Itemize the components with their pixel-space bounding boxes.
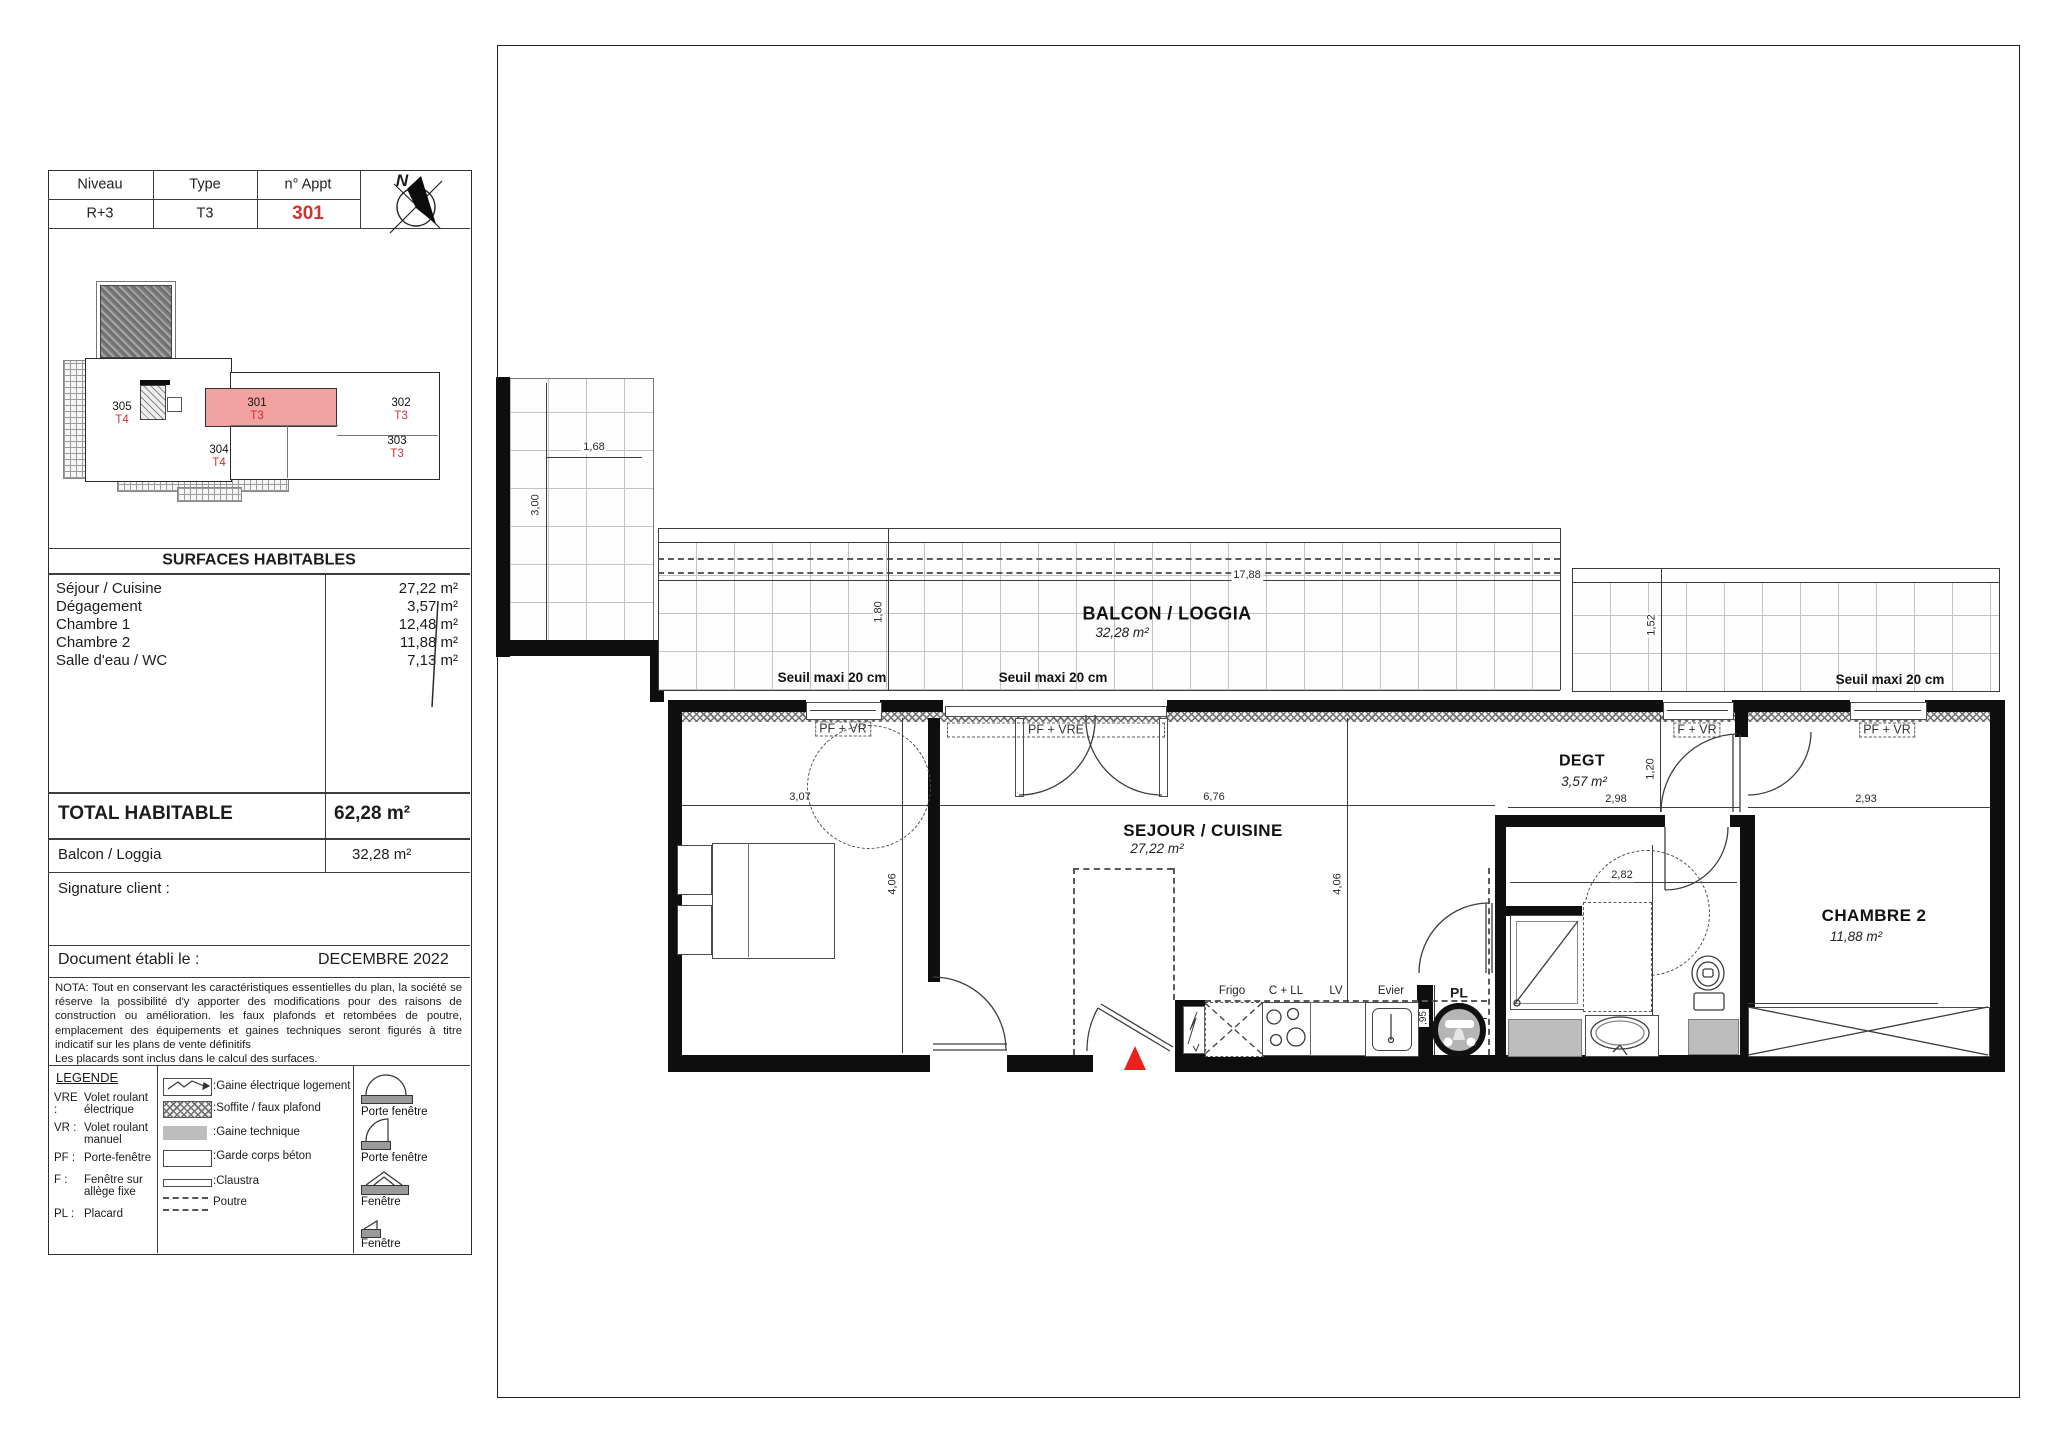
window-label-sejour: PF + VRE bbox=[947, 722, 1165, 737]
fenetre-icon bbox=[361, 1185, 409, 1195]
poutre-line bbox=[658, 572, 1560, 574]
wall-sejour-sde bbox=[1495, 815, 1506, 1055]
garde-corps-icon bbox=[163, 1150, 212, 1167]
dim-balcony2-depth: 1,52 bbox=[1647, 612, 1658, 637]
abbr-label: Volet roulant manuel bbox=[84, 1122, 152, 1146]
porte-fenetre-double-icon bbox=[361, 1095, 413, 1104]
window-label-degt: F + VR bbox=[1673, 722, 1720, 737]
dim-pl-width: ,90 bbox=[1449, 1003, 1467, 1014]
surface-row-value: 3,57 m² bbox=[330, 598, 458, 616]
symbol-label: Poutre bbox=[213, 1196, 350, 1208]
abbr-label: Placard bbox=[84, 1208, 152, 1220]
window-chambre1 bbox=[806, 702, 882, 720]
surfaces-values: 27,22 m² 3,57 m² 12,48 m² 11,88 m² 7,13 … bbox=[330, 580, 458, 670]
niveau-value: R+3 bbox=[86, 206, 113, 221]
lv-label: LV bbox=[1329, 985, 1342, 997]
accessibility-circle bbox=[807, 725, 931, 849]
unit-305: 305 bbox=[112, 401, 131, 413]
niveau-label: Niveau bbox=[77, 177, 122, 192]
opening-label: Porte fenêtre bbox=[361, 1152, 427, 1164]
symbol-label: :Gaine électrique logement bbox=[213, 1080, 350, 1092]
surface-row-value: 7,13 m² bbox=[330, 652, 458, 670]
abbr-code: PF : bbox=[54, 1152, 84, 1164]
entrance-triangle bbox=[1124, 1046, 1146, 1070]
dim-terrace-width: 1,68 bbox=[581, 442, 606, 454]
dim-degt-height: 1,20 bbox=[1646, 756, 1657, 781]
surface-row-label: Séjour / Cuisine bbox=[56, 580, 318, 598]
balcony-name: BALCON / LOGGIA bbox=[1083, 605, 1252, 624]
unit-304: 304 bbox=[209, 444, 228, 456]
dim-degt-width: 2,98 bbox=[1603, 794, 1628, 806]
legend-abbr: VRE :Volet roulant électrique VR :Volet … bbox=[54, 1092, 154, 1220]
degt-name: DEGT bbox=[1559, 754, 1605, 771]
balcony-row-value: 32,28 m² bbox=[352, 846, 411, 863]
unit-303-type: T3 bbox=[390, 448, 403, 460]
gaine-technique bbox=[1508, 1019, 1582, 1057]
seuil-label-3: Seuil maxi 20 cm bbox=[1836, 673, 1945, 687]
cooktop-box bbox=[1262, 1002, 1312, 1056]
washbasin-counter bbox=[1585, 1015, 1659, 1057]
dim-balcony-depth: 1,80 bbox=[874, 599, 885, 624]
soffite-icon bbox=[163, 1101, 212, 1118]
claustra-icon bbox=[163, 1179, 212, 1187]
nightstand bbox=[677, 905, 712, 955]
abbr-label: Porte-fenêtre bbox=[84, 1152, 152, 1164]
opening-label: Porte fenêtre bbox=[361, 1106, 427, 1118]
bed bbox=[712, 843, 835, 959]
total-value: 62,28 m² bbox=[334, 803, 410, 825]
type-label: Type bbox=[189, 177, 220, 192]
frigo-box bbox=[1205, 1002, 1264, 1057]
balcony-area: 32,28 m² bbox=[1095, 626, 1148, 640]
seuil-label-1: Seuil maxi 20 cm bbox=[778, 671, 887, 685]
surface-row-label: Salle d'eau / WC bbox=[56, 652, 318, 670]
surface-row-value: 27,22 m² bbox=[330, 580, 458, 598]
opening-label: Fenêtre bbox=[361, 1238, 401, 1250]
seuil-label-2: Seuil maxi 20 cm bbox=[999, 671, 1108, 685]
document-date-label: Document établi le : bbox=[58, 951, 199, 969]
compass-n-label: N bbox=[396, 172, 408, 190]
gaine-technique-icon bbox=[163, 1126, 207, 1140]
window-degt bbox=[1663, 702, 1734, 720]
surface-row-value: 11,88 m² bbox=[330, 634, 458, 652]
dim-balcony-width: 17,88 bbox=[1231, 570, 1263, 582]
unit-305-type: T4 bbox=[115, 414, 128, 426]
fenetre-fixe-icon bbox=[361, 1229, 381, 1238]
symbol-label: :Gaine technique bbox=[213, 1126, 350, 1138]
abbr-code: PL : bbox=[54, 1208, 84, 1220]
surfaces-title: SURFACES HABITABLES bbox=[162, 553, 356, 570]
opening-label: Fenêtre bbox=[361, 1196, 401, 1208]
unit-301-highlight bbox=[205, 388, 337, 427]
total-label: TOTAL HABITABLE bbox=[58, 803, 233, 825]
degt-area: 3,57 m² bbox=[1561, 775, 1607, 789]
poutre-icon bbox=[163, 1197, 208, 1211]
chambre2-name: CHAMBRE 2 bbox=[1822, 907, 1927, 925]
dim-terrace-height: 3,00 bbox=[531, 492, 542, 517]
symbol-label: :Claustra bbox=[213, 1175, 350, 1187]
nightstand bbox=[677, 845, 712, 895]
wardrobe bbox=[1748, 1007, 1990, 1057]
dim-chambre1-height: 4,06 bbox=[888, 871, 899, 896]
type-value: T3 bbox=[197, 206, 214, 221]
legend-title: LEGENDE bbox=[56, 1070, 118, 1085]
signature-label: Signature client : bbox=[58, 880, 170, 897]
balcony-row-label: Balcon / Loggia bbox=[58, 846, 161, 863]
frigo-label: Frigo bbox=[1219, 985, 1245, 997]
counter-box bbox=[1310, 1002, 1369, 1056]
stairwell bbox=[140, 385, 166, 420]
window-label-chambre2: PF + VR bbox=[1859, 722, 1915, 737]
roof-hatch bbox=[100, 285, 172, 358]
symbol-label: :Soffite / faux plafond bbox=[213, 1102, 350, 1114]
shower-tray-inner bbox=[1516, 921, 1578, 1004]
pl-label: PL bbox=[1450, 986, 1468, 1001]
surface-row-label: Chambre 2 bbox=[56, 634, 318, 652]
sejour-name: SEJOUR / CUISINE bbox=[1123, 822, 1282, 840]
abbr-code: VRE : bbox=[54, 1092, 84, 1116]
abbr-label: Volet roulant électrique bbox=[84, 1092, 152, 1116]
evier-basin bbox=[1372, 1008, 1412, 1051]
dim-sejour-width: 6,76 bbox=[1201, 792, 1226, 804]
floorplan-sheet: Niveau Type n° Appt R+3 T3 301 N 305 T4 … bbox=[0, 0, 2048, 1447]
appt-number: 301 bbox=[292, 204, 324, 224]
gaine-electrique-icon bbox=[163, 1078, 212, 1096]
shower-zone bbox=[1583, 902, 1652, 1012]
surface-row-value: 12,48 m² bbox=[330, 616, 458, 634]
legend-symbol-labels: :Gaine électrique logement :Soffite / fa… bbox=[213, 1080, 350, 1208]
unit-302-type: T3 bbox=[394, 410, 407, 422]
abbr-code: F : bbox=[54, 1174, 84, 1198]
dim-chambre2-width: 2,93 bbox=[1853, 794, 1878, 806]
surfaces-rows: Séjour / Cuisine Dégagement Chambre 1 Ch… bbox=[56, 580, 318, 670]
window-sejour bbox=[945, 706, 1167, 717]
porte-fenetre-simple-icon bbox=[361, 1141, 391, 1150]
dim-sejour-height: 4,06 bbox=[1333, 871, 1344, 896]
surface-row-label: Dégagement bbox=[56, 598, 318, 616]
gaine-electrique-box bbox=[1183, 1006, 1205, 1054]
evier-label: Evier bbox=[1378, 985, 1404, 997]
nota-text: NOTA: Tout en conservant les caractérist… bbox=[55, 981, 462, 1066]
poutre-line bbox=[658, 558, 1560, 560]
symbol-label: :Garde corps béton bbox=[213, 1150, 350, 1162]
key-plan: 305 T4 304 T4 301 T3 302 T3 303 T3 bbox=[48, 229, 469, 547]
sejour-area: 27,22 m² bbox=[1130, 842, 1183, 856]
nota-line1: NOTA: Tout en conservant les caractérist… bbox=[55, 981, 462, 1052]
abbr-code: VR : bbox=[54, 1122, 84, 1146]
cll-label: C + LL bbox=[1269, 985, 1303, 997]
gaine-technique bbox=[1688, 1019, 1739, 1055]
unit-301-type: T3 bbox=[250, 410, 263, 422]
unit-303: 303 bbox=[387, 435, 406, 447]
dim-pl-depth: ,95 bbox=[1419, 1009, 1429, 1027]
unit-304-type: T4 bbox=[212, 457, 225, 469]
unit-302: 302 bbox=[391, 397, 410, 409]
window-chambre2 bbox=[1850, 702, 1927, 720]
chambre2-area: 11,88 m² bbox=[1830, 930, 1882, 944]
appt-label: n° Appt bbox=[285, 177, 332, 192]
surface-row-label: Chambre 1 bbox=[56, 616, 318, 634]
document-date-value: DECEMBRE 2022 bbox=[318, 951, 449, 969]
unit-301: 301 bbox=[247, 397, 266, 409]
wall-chambre1-sejour bbox=[928, 718, 940, 982]
abbr-label: Fenêtre sur allège fixe bbox=[84, 1174, 152, 1198]
